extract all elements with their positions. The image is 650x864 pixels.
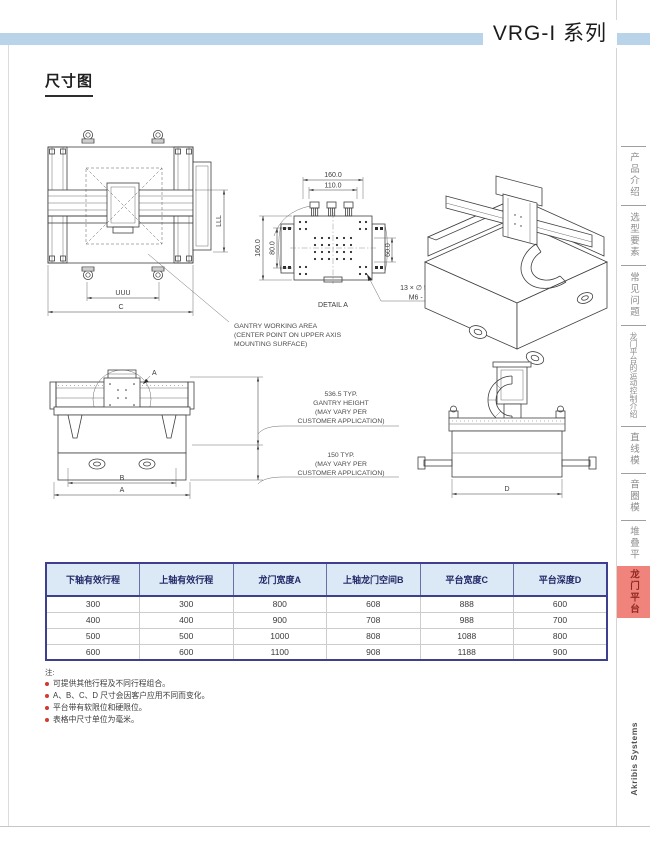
table-cell: 708 xyxy=(327,612,421,628)
tab-divider xyxy=(621,265,646,266)
table-cell: 908 xyxy=(327,644,421,660)
sidebar-tab[interactable]: 产品介绍 xyxy=(617,152,650,198)
spec-table: 下轴有效行程上轴有效行程龙门宽度A上轴龙门空间B平台宽度C平台深度D 30030… xyxy=(45,562,608,661)
table-cell: 1088 xyxy=(420,628,514,644)
working-area-note: GANTRY WORKING AREA (CENTER POINT ON UPP… xyxy=(234,323,342,348)
dimension-drawing: UUU C LLL GANTRY WORKING AREA (CENTER PO… xyxy=(0,105,615,560)
drawing-top-view: UUU C LLL xyxy=(48,130,229,322)
sidebar-tabs: 产品介绍选型要素常见问题龙门平台的运动控制介绍直线模组音圈模组堆叠平台龙门平台 xyxy=(616,0,650,826)
notes-list: 可提供其他行程及不同行程组合。A、B、C、D 尺寸会因客户应用不同而变化。平台带… xyxy=(45,678,465,726)
notes-label: 注: xyxy=(45,667,465,678)
dim-label-uuu: UUU xyxy=(115,290,130,297)
dim-label-b: B xyxy=(120,475,125,482)
column-header: 上轴龙门空间B xyxy=(327,563,421,596)
spec-table-body: 3003008006088886004004009007089887005005… xyxy=(46,596,607,660)
table-cell: 500 xyxy=(46,628,140,644)
detail-marker-label: A xyxy=(152,370,157,377)
table-cell: 808 xyxy=(327,628,421,644)
series-title: VRG-I 系列 xyxy=(483,20,617,48)
tab-divider xyxy=(621,146,646,147)
dim-label-a: A xyxy=(120,487,125,494)
sidebar-tab[interactable]: 龙门平台的运动控制介绍 xyxy=(617,330,650,420)
table-cell: 400 xyxy=(140,612,234,628)
table-row: 60060011009081188900 xyxy=(46,644,607,660)
table-cell: 300 xyxy=(140,596,234,612)
tab-divider xyxy=(621,520,646,521)
tab-divider xyxy=(621,205,646,206)
table-cell: 600 xyxy=(140,644,234,660)
catalog-page: VRG-I 系列 尺寸图 xyxy=(0,0,650,864)
drawing-front-view: A B A xyxy=(50,370,399,499)
column-header: 平台宽度C xyxy=(420,563,514,596)
page-border-bottom xyxy=(0,826,650,827)
note-item: 表格中尺寸单位为毫米。 xyxy=(45,714,465,726)
table-row: 400400900708988700 xyxy=(46,612,607,628)
table-cell: 300 xyxy=(46,596,140,612)
dim-label-160-top: 160.0 xyxy=(324,172,342,179)
working-area-note-line3: MOUNTING SURFACE) xyxy=(234,341,307,348)
table-cell: 608 xyxy=(327,596,421,612)
dim-label-lll: LLL xyxy=(216,215,223,227)
table-cell: 1100 xyxy=(233,644,327,660)
note-bullet-icon xyxy=(45,718,49,722)
sidebar-tab[interactable]: 选型要素 xyxy=(617,212,650,258)
dim-label-110: 110.0 xyxy=(325,183,342,190)
tab-divider xyxy=(621,426,646,427)
table-cell: 600 xyxy=(514,596,608,612)
base-height-note: 150 TYP. (MAY VARY PER CUSTOMER APPLICAT… xyxy=(298,452,385,477)
dim-label-60: 60.0 xyxy=(385,243,392,257)
gantry-height-line2: GANTRY HEIGHT xyxy=(313,400,369,407)
sidebar-tab[interactable]: 常见问题 xyxy=(617,272,650,318)
gantry-height-line4: CUSTOMER APPLICATION) xyxy=(298,418,385,425)
detail-a-label: DETAIL A xyxy=(318,302,348,309)
table-cell: 600 xyxy=(46,644,140,660)
dim-label-80: 80.0 xyxy=(270,241,277,255)
sidebar-tab[interactable]: 龙门平台 xyxy=(617,566,650,618)
tab-divider xyxy=(621,473,646,474)
table-cell: 800 xyxy=(514,628,608,644)
gantry-height-note: 536.5 TYP. GANTRY HEIGHT (MAY VARY PER C… xyxy=(298,391,385,425)
table-cell: 900 xyxy=(514,644,608,660)
note-bullet-icon xyxy=(45,706,49,710)
tab-divider xyxy=(621,325,646,326)
notes-block: 注: 可提供其他行程及不同行程组合。A、B、C、D 尺寸会因客户应用不同而变化。… xyxy=(45,667,465,726)
base-height-line3: CUSTOMER APPLICATION) xyxy=(298,470,385,477)
column-header: 下轴有效行程 xyxy=(46,563,140,596)
working-area-note-line2: (CENTER POINT ON UPPER AXIS xyxy=(234,332,342,339)
drawing-side-view: D xyxy=(418,362,596,498)
dim-label-160-left: 160.0 xyxy=(255,239,262,257)
base-height-line1: 150 TYP. xyxy=(327,452,354,459)
column-header: 龙门宽度A xyxy=(233,563,327,596)
note-item: 可提供其他行程及不同行程组合。 xyxy=(45,678,465,690)
table-row: 300300800608888600 xyxy=(46,596,607,612)
sidebar-tab[interactable]: 堆叠平台 xyxy=(617,525,650,561)
table-cell: 500 xyxy=(140,628,234,644)
spec-table-head-row: 下轴有效行程上轴有效行程龙门宽度A上轴龙门空间B平台宽度C平台深度D xyxy=(46,563,607,596)
note-item: 平台带有软限位和硬限位。 xyxy=(45,702,465,714)
table-cell: 700 xyxy=(514,612,608,628)
table-cell: 888 xyxy=(420,596,514,612)
table-row: 50050010008081088800 xyxy=(46,628,607,644)
column-header: 上轴有效行程 xyxy=(140,563,234,596)
drawing-isometric-view xyxy=(425,176,607,367)
column-header: 平台深度D xyxy=(514,563,608,596)
sidebar-tab[interactable]: 音圈模组 xyxy=(617,478,650,514)
note-bullet-icon xyxy=(45,694,49,698)
table-cell: 988 xyxy=(420,612,514,628)
table-cell: 1000 xyxy=(233,628,327,644)
brand-vertical: Akribis Systems xyxy=(629,722,639,796)
base-height-line2: (MAY VARY PER xyxy=(315,461,367,468)
note-bullet-icon xyxy=(45,682,49,686)
dim-label-c: C xyxy=(118,304,123,311)
table-cell: 800 xyxy=(233,596,327,612)
section-title: 尺寸图 xyxy=(45,70,93,97)
gantry-height-line3: (MAY VARY PER xyxy=(315,409,367,416)
dim-label-d: D xyxy=(504,486,509,493)
gantry-height-line1: 536.5 TYP. xyxy=(324,391,357,398)
table-cell: 400 xyxy=(46,612,140,628)
table-cell: 900 xyxy=(233,612,327,628)
note-item: A、B、C、D 尺寸会因客户应用不同而变化。 xyxy=(45,690,465,702)
table-cell: 1188 xyxy=(420,644,514,660)
working-area-note-line1: GANTRY WORKING AREA xyxy=(234,323,318,330)
sidebar-tab[interactable]: 直线模组 xyxy=(617,431,650,467)
